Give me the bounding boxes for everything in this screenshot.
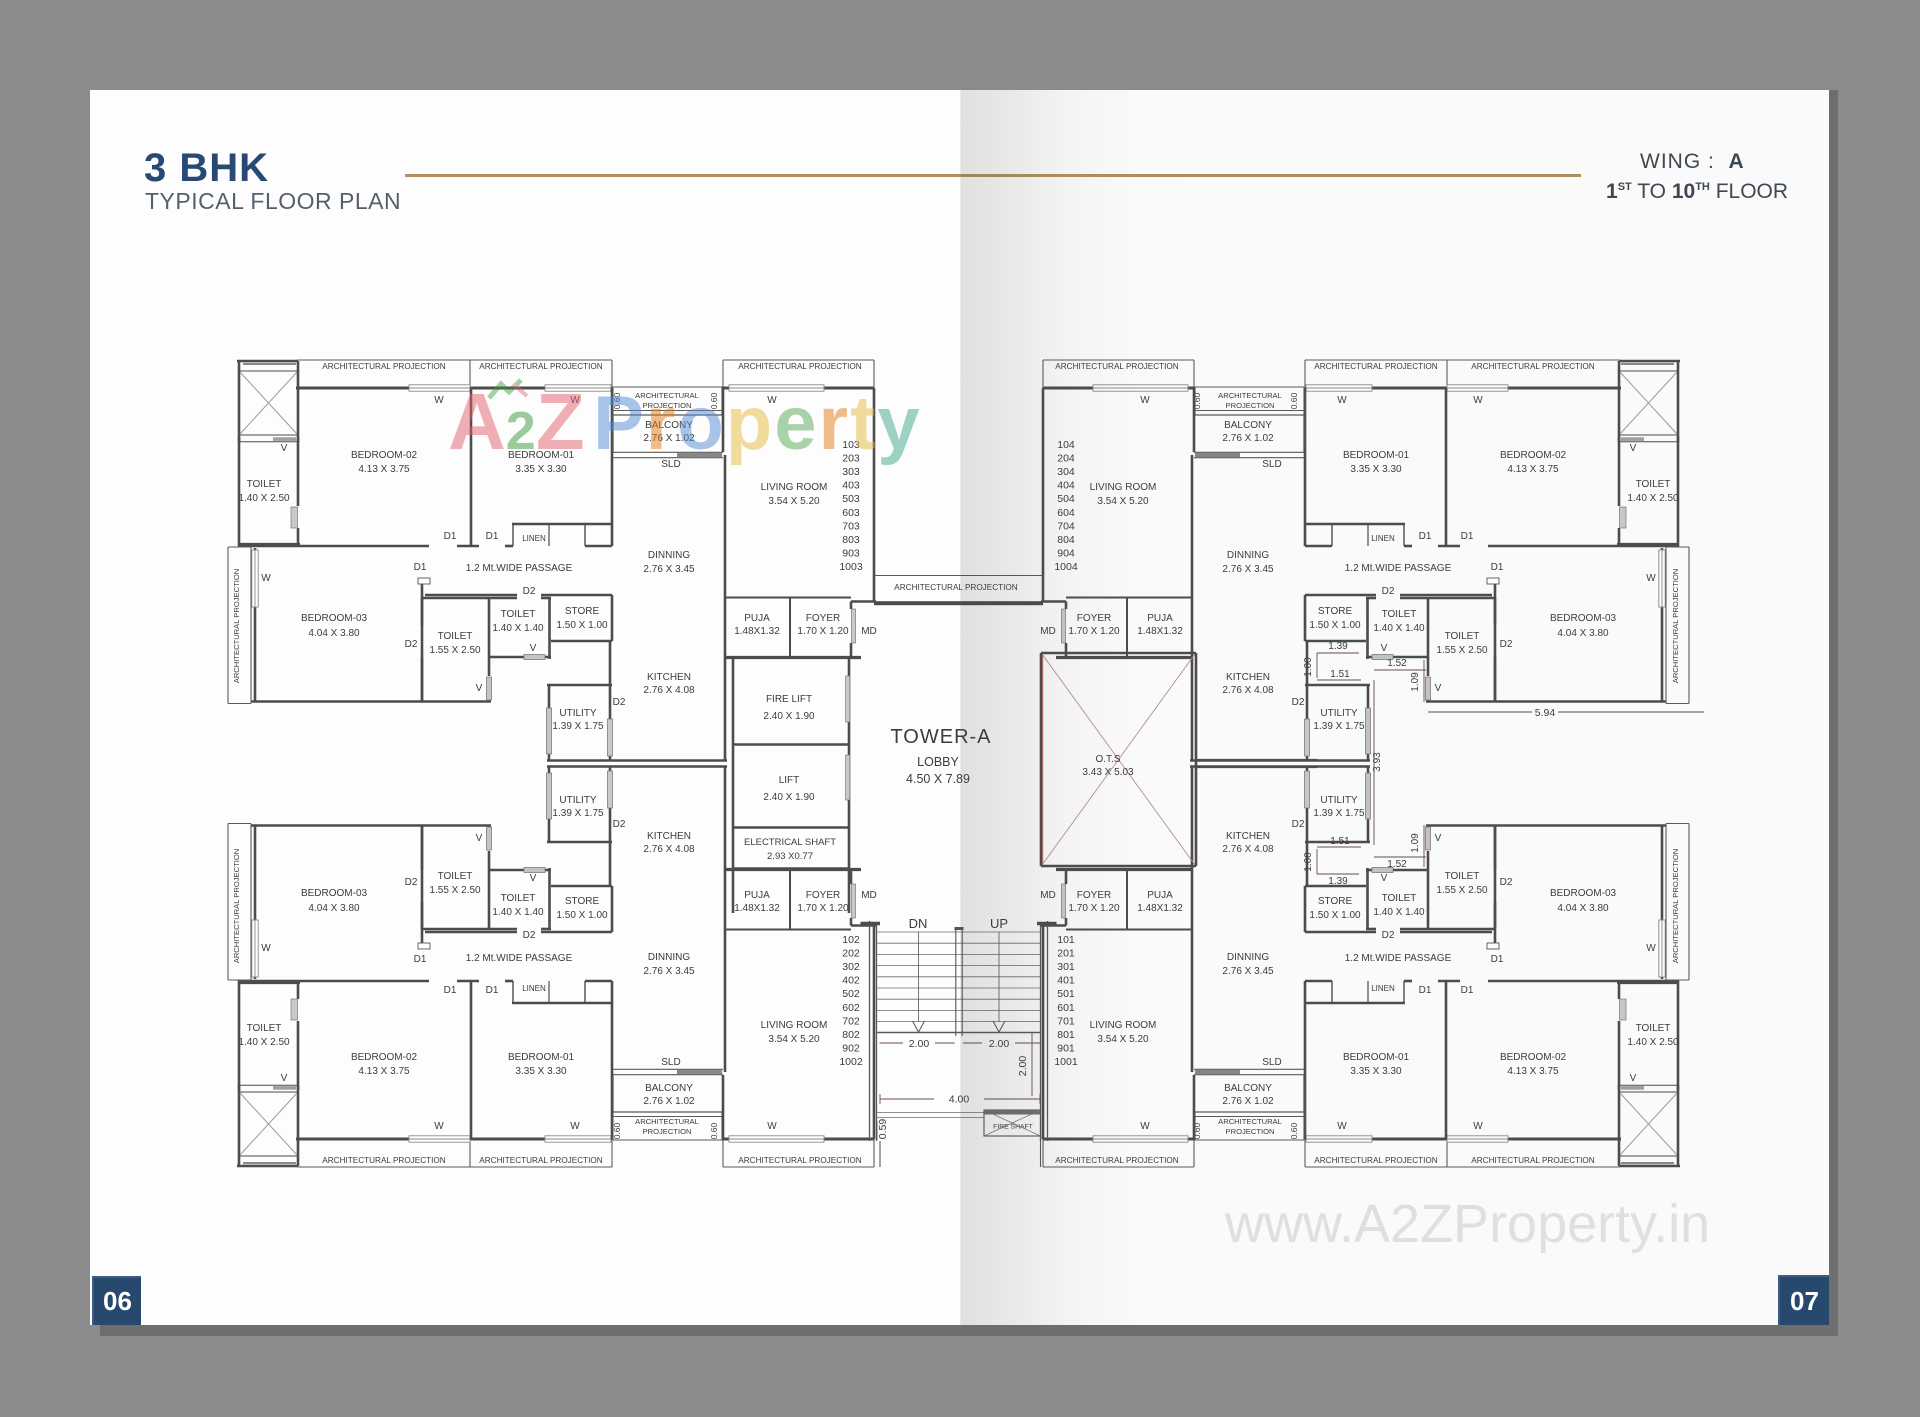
svg-text:2.76 X 4.08: 2.76 X 4.08 — [1222, 685, 1274, 696]
svg-text:2.76 X 1.02: 2.76 X 1.02 — [1222, 1096, 1274, 1107]
svg-text:ELECTRICAL SHAFT: ELECTRICAL SHAFT — [744, 837, 836, 848]
svg-text:TOWER-A: TOWER-A — [890, 726, 991, 748]
svg-text:UTILITY: UTILITY — [1320, 795, 1358, 806]
svg-text:ARCHITECTURAL: ARCHITECTURAL — [1218, 391, 1282, 400]
svg-text:1.50 X 1.00: 1.50 X 1.00 — [556, 620, 608, 631]
svg-text:1.00: 1.00 — [1303, 657, 1314, 677]
svg-text:PROJECTION: PROJECTION — [1226, 1127, 1275, 1136]
svg-text:LINEN: LINEN — [522, 984, 546, 993]
svg-text:TOILET: TOILET — [1636, 479, 1671, 490]
svg-text:PUJA: PUJA — [1147, 890, 1173, 901]
svg-text:KITCHEN: KITCHEN — [647, 672, 691, 683]
svg-text:1.48X1.32: 1.48X1.32 — [1137, 626, 1183, 637]
svg-text:SLD: SLD — [661, 1057, 680, 1068]
svg-text:BEDROOM-01: BEDROOM-01 — [508, 1052, 575, 1063]
svg-text:PUJA: PUJA — [1147, 613, 1173, 624]
svg-text:804: 804 — [1057, 534, 1075, 546]
svg-text:204: 204 — [1057, 453, 1075, 465]
svg-text:ARCHITECTURAL PROJECTION: ARCHITECTURAL PROJECTION — [1671, 849, 1680, 963]
svg-text:904: 904 — [1057, 547, 1075, 559]
svg-text:V: V — [476, 683, 483, 694]
svg-text:D2: D2 — [1500, 639, 1513, 650]
svg-text:MD: MD — [861, 890, 877, 901]
svg-text:PUJA: PUJA — [744, 613, 770, 624]
svg-text:1.2 Mt.WIDE PASSAGE: 1.2 Mt.WIDE PASSAGE — [466, 563, 573, 574]
svg-text:LIVING ROOM: LIVING ROOM — [761, 1020, 828, 1031]
svg-text:D1: D1 — [486, 985, 499, 996]
svg-text:2.40 X 1.90: 2.40 X 1.90 — [763, 792, 815, 803]
svg-text:1.70 X 1.20: 1.70 X 1.20 — [797, 626, 849, 637]
svg-text:ARCHITECTURAL PROJECTION: ARCHITECTURAL PROJECTION — [1314, 362, 1438, 371]
svg-text:1.09: 1.09 — [1410, 833, 1421, 853]
svg-text:DINNING: DINNING — [648, 550, 690, 561]
svg-text:ARCHITECTURAL PROJECTION: ARCHITECTURAL PROJECTION — [1471, 1156, 1595, 1165]
svg-text:W: W — [1646, 573, 1656, 584]
svg-text:4.04 X 3.80: 4.04 X 3.80 — [308, 903, 360, 914]
svg-text:W: W — [1140, 395, 1150, 406]
svg-text:D2: D2 — [1500, 877, 1513, 888]
svg-text:FIRE LIFT: FIRE LIFT — [766, 694, 812, 705]
svg-text:2.00: 2.00 — [909, 1038, 930, 1050]
svg-text:2.76 X 4.08: 2.76 X 4.08 — [643, 844, 695, 855]
svg-text:BEDROOM-02: BEDROOM-02 — [351, 450, 418, 461]
svg-text:3.54 X 5.20: 3.54 X 5.20 — [768, 496, 820, 507]
svg-text:LOBBY: LOBBY — [917, 755, 959, 769]
svg-text:401: 401 — [1057, 975, 1075, 987]
svg-text:0.60: 0.60 — [1289, 1122, 1299, 1139]
svg-text:201: 201 — [1057, 948, 1075, 960]
svg-text:O.T.S: O.T.S — [1095, 754, 1120, 765]
svg-text:1.39 X 1.75: 1.39 X 1.75 — [1313, 808, 1365, 819]
svg-text:1.48X1.32: 1.48X1.32 — [734, 903, 780, 914]
svg-text:V: V — [1381, 643, 1388, 654]
svg-text:2.40 X 1.90: 2.40 X 1.90 — [763, 711, 815, 722]
svg-text:PROJECTION: PROJECTION — [1226, 401, 1275, 410]
svg-text:LIVING ROOM: LIVING ROOM — [761, 482, 828, 493]
svg-text:703: 703 — [842, 520, 860, 532]
svg-text:LIVING ROOM: LIVING ROOM — [1090, 482, 1157, 493]
svg-text:TOILET: TOILET — [247, 1023, 282, 1034]
svg-text:1.70 X 1.20: 1.70 X 1.20 — [1068, 626, 1120, 637]
svg-text:ARCHITECTURAL PROJECTION: ARCHITECTURAL PROJECTION — [479, 1156, 603, 1165]
svg-text:W: W — [1337, 1121, 1347, 1132]
svg-text:603: 603 — [842, 507, 860, 519]
svg-text:BEDROOM-03: BEDROOM-03 — [301, 613, 368, 624]
svg-text:4.13 X 3.75: 4.13 X 3.75 — [1507, 464, 1559, 475]
svg-text:D1: D1 — [414, 562, 427, 573]
svg-text:UP: UP — [990, 916, 1008, 931]
svg-text:FOYER: FOYER — [1077, 613, 1111, 624]
svg-text:1.2 Mt.WIDE PASSAGE: 1.2 Mt.WIDE PASSAGE — [1345, 563, 1452, 574]
svg-text:2.76 X 3.45: 2.76 X 3.45 — [1222, 564, 1274, 575]
svg-text:DN: DN — [909, 916, 928, 931]
svg-text:1.70 X 1.20: 1.70 X 1.20 — [1068, 903, 1120, 914]
svg-text:2.76 X 3.45: 2.76 X 3.45 — [643, 966, 695, 977]
svg-text:BEDROOM-01: BEDROOM-01 — [1343, 450, 1410, 461]
svg-text:1.50 X 1.00: 1.50 X 1.00 — [1309, 620, 1361, 631]
svg-text:W: W — [261, 943, 271, 954]
svg-text:W: W — [1473, 395, 1483, 406]
svg-text:D1: D1 — [1419, 985, 1432, 996]
svg-text:1.40 X 1.40: 1.40 X 1.40 — [492, 907, 544, 918]
svg-text:W: W — [767, 1121, 777, 1132]
svg-text:4.04 X 3.80: 4.04 X 3.80 — [308, 628, 360, 639]
svg-text:W: W — [434, 395, 444, 406]
svg-text:1.39 X 1.75: 1.39 X 1.75 — [552, 721, 604, 732]
svg-text:ARCHITECTURAL PROJECTION: ARCHITECTURAL PROJECTION — [322, 362, 446, 371]
svg-text:TOILET: TOILET — [438, 631, 473, 642]
svg-text:D1: D1 — [486, 531, 499, 542]
svg-text:1.39: 1.39 — [1328, 641, 1348, 652]
svg-text:4.04 X 3.80: 4.04 X 3.80 — [1557, 628, 1609, 639]
svg-text:D1: D1 — [444, 531, 457, 542]
svg-text:SLD: SLD — [1262, 1057, 1281, 1068]
svg-text:4.04 X 3.80: 4.04 X 3.80 — [1557, 903, 1609, 914]
svg-text:D2: D2 — [613, 819, 626, 830]
svg-text:1.70 X 1.20: 1.70 X 1.20 — [797, 903, 849, 914]
svg-text:3.93: 3.93 — [1372, 752, 1383, 772]
svg-text:V: V — [530, 873, 537, 884]
svg-text:801: 801 — [1057, 1029, 1075, 1041]
svg-text:MD: MD — [861, 626, 877, 637]
svg-text:4.13 X 3.75: 4.13 X 3.75 — [358, 464, 410, 475]
svg-text:1.52: 1.52 — [1387, 859, 1407, 870]
svg-text:802: 802 — [842, 1029, 860, 1041]
svg-text:1.40 X 1.40: 1.40 X 1.40 — [1373, 907, 1425, 918]
svg-text:D2: D2 — [1382, 586, 1395, 597]
svg-text:V: V — [281, 443, 288, 454]
svg-text:803: 803 — [842, 534, 860, 546]
svg-text:FOYER: FOYER — [806, 890, 840, 901]
svg-text:104: 104 — [1057, 439, 1075, 451]
svg-text:FIRE SHAFT: FIRE SHAFT — [993, 1124, 1033, 1131]
svg-text:PUJA: PUJA — [744, 890, 770, 901]
svg-text:1.50 X 1.00: 1.50 X 1.00 — [1309, 910, 1361, 921]
svg-text:FOYER: FOYER — [806, 613, 840, 624]
svg-text:1.39 X 1.75: 1.39 X 1.75 — [1313, 721, 1365, 732]
svg-text:BALCONY: BALCONY — [1224, 1083, 1272, 1094]
svg-text:1.50 X 1.00: 1.50 X 1.00 — [556, 910, 608, 921]
svg-text:0.60: 0.60 — [709, 1122, 719, 1139]
svg-text:D2: D2 — [1382, 930, 1395, 941]
svg-text:901: 901 — [1057, 1042, 1075, 1054]
svg-text:2.76 X 1.02: 2.76 X 1.02 — [1222, 433, 1274, 444]
svg-text:1.48X1.32: 1.48X1.32 — [734, 626, 780, 637]
svg-text:903: 903 — [842, 547, 860, 559]
svg-text:1.2 Mt.WIDE PASSAGE: 1.2 Mt.WIDE PASSAGE — [466, 953, 573, 964]
svg-text:101: 101 — [1057, 934, 1075, 946]
svg-text:1.00: 1.00 — [1303, 852, 1314, 872]
svg-text:3.43 X 5.03: 3.43 X 5.03 — [1082, 767, 1134, 778]
svg-text:1.40 X 2.50: 1.40 X 2.50 — [238, 1037, 290, 1048]
svg-text:D2: D2 — [1292, 697, 1305, 708]
svg-text:W: W — [434, 1121, 444, 1132]
svg-text:1.39 X 1.75: 1.39 X 1.75 — [552, 808, 604, 819]
svg-text:TOILET: TOILET — [501, 609, 536, 620]
svg-text:3.54 X 5.20: 3.54 X 5.20 — [768, 1034, 820, 1045]
svg-text:ARCHITECTURAL: ARCHITECTURAL — [1218, 1117, 1282, 1126]
svg-text:1.51: 1.51 — [1330, 669, 1350, 680]
svg-text:ARCHITECTURAL PROJECTION: ARCHITECTURAL PROJECTION — [738, 362, 862, 371]
svg-text:SLD: SLD — [1262, 459, 1281, 470]
svg-text:ARCHITECTURAL PROJECTION: ARCHITECTURAL PROJECTION — [322, 1156, 446, 1165]
svg-text:LINEN: LINEN — [522, 534, 546, 543]
svg-text:902: 902 — [842, 1042, 860, 1054]
svg-text:STORE: STORE — [565, 896, 600, 907]
svg-text:5.94: 5.94 — [1535, 707, 1556, 719]
svg-text:2.93 X0.77: 2.93 X0.77 — [767, 851, 813, 862]
svg-text:V: V — [1435, 683, 1442, 694]
svg-text:MD: MD — [1040, 890, 1056, 901]
svg-text:ARCHITECTURAL PROJECTION: ARCHITECTURAL PROJECTION — [232, 569, 241, 683]
svg-text:BEDROOM-03: BEDROOM-03 — [1550, 613, 1617, 624]
svg-text:1.09: 1.09 — [1410, 672, 1421, 692]
svg-text:2.00: 2.00 — [1017, 1056, 1029, 1077]
svg-text:D2: D2 — [405, 877, 418, 888]
svg-text:1.55 X 2.50: 1.55 X 2.50 — [1436, 645, 1488, 656]
svg-text:1.40 X 1.40: 1.40 X 1.40 — [1373, 623, 1425, 634]
svg-text:DINNING: DINNING — [1227, 952, 1269, 963]
svg-text:1.55 X 2.50: 1.55 X 2.50 — [429, 885, 481, 896]
svg-text:LIFT: LIFT — [779, 775, 800, 786]
svg-text:LINEN: LINEN — [1371, 984, 1395, 993]
svg-text:D1: D1 — [1491, 954, 1504, 965]
svg-text:ARCHITECTURAL PROJECTION: ARCHITECTURAL PROJECTION — [479, 362, 603, 371]
svg-text:404: 404 — [1057, 480, 1075, 492]
svg-text:202: 202 — [842, 948, 860, 960]
svg-text:V: V — [1630, 1073, 1637, 1084]
svg-text:STORE: STORE — [1318, 606, 1353, 617]
svg-text:3.35 X 3.30: 3.35 X 3.30 — [1350, 464, 1402, 475]
svg-text:2.76 X 3.45: 2.76 X 3.45 — [643, 564, 695, 575]
svg-text:702: 702 — [842, 1015, 860, 1027]
svg-text:1001: 1001 — [1054, 1056, 1078, 1068]
svg-text:D2: D2 — [405, 639, 418, 650]
svg-text:1.39: 1.39 — [1328, 876, 1348, 887]
svg-text:BALCONY: BALCONY — [645, 1083, 693, 1094]
svg-text:LINEN: LINEN — [1371, 534, 1395, 543]
svg-text:502: 502 — [842, 988, 860, 1000]
svg-text:304: 304 — [1057, 466, 1075, 478]
svg-text:503: 503 — [842, 493, 860, 505]
svg-text:W: W — [1337, 395, 1347, 406]
svg-text:D2: D2 — [523, 586, 536, 597]
svg-text:TOILET: TOILET — [1445, 871, 1480, 882]
svg-text:1004: 1004 — [1054, 561, 1078, 573]
svg-text:504: 504 — [1057, 493, 1075, 505]
svg-text:601: 601 — [1057, 1002, 1075, 1014]
svg-text:PROJECTION: PROJECTION — [643, 1127, 692, 1136]
svg-text:KITCHEN: KITCHEN — [1226, 672, 1270, 683]
svg-text:KITCHEN: KITCHEN — [647, 831, 691, 842]
svg-text:602: 602 — [842, 1002, 860, 1014]
svg-text:BEDROOM-03: BEDROOM-03 — [301, 888, 368, 899]
svg-text:D1: D1 — [1461, 531, 1474, 542]
svg-text:D1: D1 — [1461, 985, 1474, 996]
svg-text:1002: 1002 — [839, 1056, 863, 1068]
svg-text:D1: D1 — [1491, 562, 1504, 573]
svg-text:V: V — [476, 833, 483, 844]
svg-text:BEDROOM-03: BEDROOM-03 — [1550, 888, 1617, 899]
svg-text:V: V — [1381, 873, 1388, 884]
svg-text:1.40 X 1.40: 1.40 X 1.40 — [492, 623, 544, 634]
svg-text:4.00: 4.00 — [949, 1094, 970, 1106]
svg-text:BALCONY: BALCONY — [1224, 420, 1272, 431]
svg-text:3.35 X 3.30: 3.35 X 3.30 — [1350, 1066, 1402, 1077]
svg-text:102: 102 — [842, 934, 860, 946]
svg-text:TOILET: TOILET — [438, 871, 473, 882]
svg-text:W: W — [1140, 1121, 1150, 1132]
svg-text:V: V — [1630, 443, 1637, 454]
svg-text:402: 402 — [842, 975, 860, 987]
svg-text:1.51: 1.51 — [1330, 836, 1350, 847]
svg-text:501: 501 — [1057, 988, 1075, 1000]
svg-text:1.40 X 2.50: 1.40 X 2.50 — [238, 493, 290, 504]
svg-text:W: W — [1646, 943, 1656, 954]
svg-text:ARCHITECTURAL PROJECTION: ARCHITECTURAL PROJECTION — [1314, 1156, 1438, 1165]
svg-text:W: W — [570, 1121, 580, 1132]
svg-text:4.13 X 3.75: 4.13 X 3.75 — [358, 1066, 410, 1077]
svg-text:UTILITY: UTILITY — [559, 708, 597, 719]
svg-text:2.76 X 1.02: 2.76 X 1.02 — [643, 1096, 695, 1107]
svg-text:302: 302 — [842, 961, 860, 973]
svg-text:ARCHITECTURAL PROJECTION: ARCHITECTURAL PROJECTION — [1055, 1156, 1179, 1165]
svg-text:TOILET: TOILET — [247, 479, 282, 490]
svg-text:ARCHITECTURAL PROJECTION: ARCHITECTURAL PROJECTION — [894, 583, 1018, 592]
svg-text:3.54 X 5.20: 3.54 X 5.20 — [1097, 1034, 1149, 1045]
svg-text:701: 701 — [1057, 1015, 1075, 1027]
svg-text:ARCHITECTURAL PROJECTION: ARCHITECTURAL PROJECTION — [1055, 362, 1179, 371]
svg-text:DINNING: DINNING — [1227, 550, 1269, 561]
svg-text:UTILITY: UTILITY — [559, 795, 597, 806]
svg-text:2.76 X 4.08: 2.76 X 4.08 — [1222, 844, 1274, 855]
svg-text:2.76 X 3.45: 2.76 X 3.45 — [1222, 966, 1274, 977]
svg-text:TOILET: TOILET — [1445, 631, 1480, 642]
svg-text:FOYER: FOYER — [1077, 890, 1111, 901]
svg-text:W: W — [1473, 1121, 1483, 1132]
svg-text:BEDROOM-02: BEDROOM-02 — [351, 1052, 418, 1063]
svg-text:3.35 X 3.30: 3.35 X 3.30 — [515, 1066, 567, 1077]
svg-text:D2: D2 — [613, 697, 626, 708]
svg-text:3.54 X 5.20: 3.54 X 5.20 — [1097, 496, 1149, 507]
svg-text:D1: D1 — [414, 954, 427, 965]
svg-text:KITCHEN: KITCHEN — [1226, 831, 1270, 842]
svg-text:1.2 Mt.WIDE PASSAGE: 1.2 Mt.WIDE PASSAGE — [1345, 953, 1452, 964]
svg-text:ARCHITECTURAL PROJECTION: ARCHITECTURAL PROJECTION — [1471, 362, 1595, 371]
svg-text:2.76 X 4.08: 2.76 X 4.08 — [643, 685, 695, 696]
svg-text:604: 604 — [1057, 507, 1075, 519]
svg-text:1.40 X 2.50: 1.40 X 2.50 — [1627, 493, 1679, 504]
svg-text:DINNING: DINNING — [648, 952, 690, 963]
svg-text:0.59: 0.59 — [877, 1119, 889, 1140]
svg-text:D2: D2 — [1292, 819, 1305, 830]
svg-text:TOILET: TOILET — [1382, 609, 1417, 620]
svg-text:704: 704 — [1057, 520, 1075, 532]
svg-text:BEDROOM-02: BEDROOM-02 — [1500, 1052, 1567, 1063]
svg-text:1.55 X 2.50: 1.55 X 2.50 — [1436, 885, 1488, 896]
svg-text:1003: 1003 — [839, 561, 863, 573]
svg-text:BEDROOM-02: BEDROOM-02 — [1500, 450, 1567, 461]
svg-text:1.48X1.32: 1.48X1.32 — [1137, 903, 1183, 914]
svg-text:ARCHITECTURAL PROJECTION: ARCHITECTURAL PROJECTION — [738, 1156, 862, 1165]
svg-text:UTILITY: UTILITY — [1320, 708, 1358, 719]
svg-text:D2: D2 — [523, 930, 536, 941]
svg-text:D1: D1 — [444, 985, 457, 996]
svg-text:1.40 X 2.50: 1.40 X 2.50 — [1627, 1037, 1679, 1048]
svg-text:4.13 X 3.75: 4.13 X 3.75 — [1507, 1066, 1559, 1077]
svg-text:ARCHITECTURAL: ARCHITECTURAL — [635, 1117, 699, 1126]
svg-text:W: W — [261, 573, 271, 584]
svg-text:4.50 X 7.89: 4.50 X 7.89 — [906, 772, 970, 786]
svg-text:V: V — [1435, 833, 1442, 844]
svg-text:TOILET: TOILET — [1636, 1023, 1671, 1034]
svg-text:MD: MD — [1040, 626, 1056, 637]
svg-text:1.52: 1.52 — [1387, 658, 1407, 669]
svg-text:BEDROOM-01: BEDROOM-01 — [1343, 1052, 1410, 1063]
svg-text:0.60: 0.60 — [612, 1122, 622, 1139]
svg-text:0.60: 0.60 — [1289, 392, 1299, 409]
svg-text:ARCHITECTURAL PROJECTION: ARCHITECTURAL PROJECTION — [232, 849, 241, 963]
svg-text:STORE: STORE — [1318, 896, 1353, 907]
svg-text:403: 403 — [842, 480, 860, 492]
svg-text:301: 301 — [1057, 961, 1075, 973]
svg-text:ARCHITECTURAL PROJECTION: ARCHITECTURAL PROJECTION — [1671, 569, 1680, 683]
svg-text:TOILET: TOILET — [501, 893, 536, 904]
svg-text:LIVING ROOM: LIVING ROOM — [1090, 1020, 1157, 1031]
svg-text:TOILET: TOILET — [1382, 893, 1417, 904]
svg-text:D1: D1 — [1419, 531, 1432, 542]
svg-text:2.00: 2.00 — [989, 1038, 1010, 1050]
svg-text:1.55 X 2.50: 1.55 X 2.50 — [429, 645, 481, 656]
svg-text:V: V — [530, 643, 537, 654]
svg-text:STORE: STORE — [565, 606, 600, 617]
svg-text:V: V — [281, 1073, 288, 1084]
